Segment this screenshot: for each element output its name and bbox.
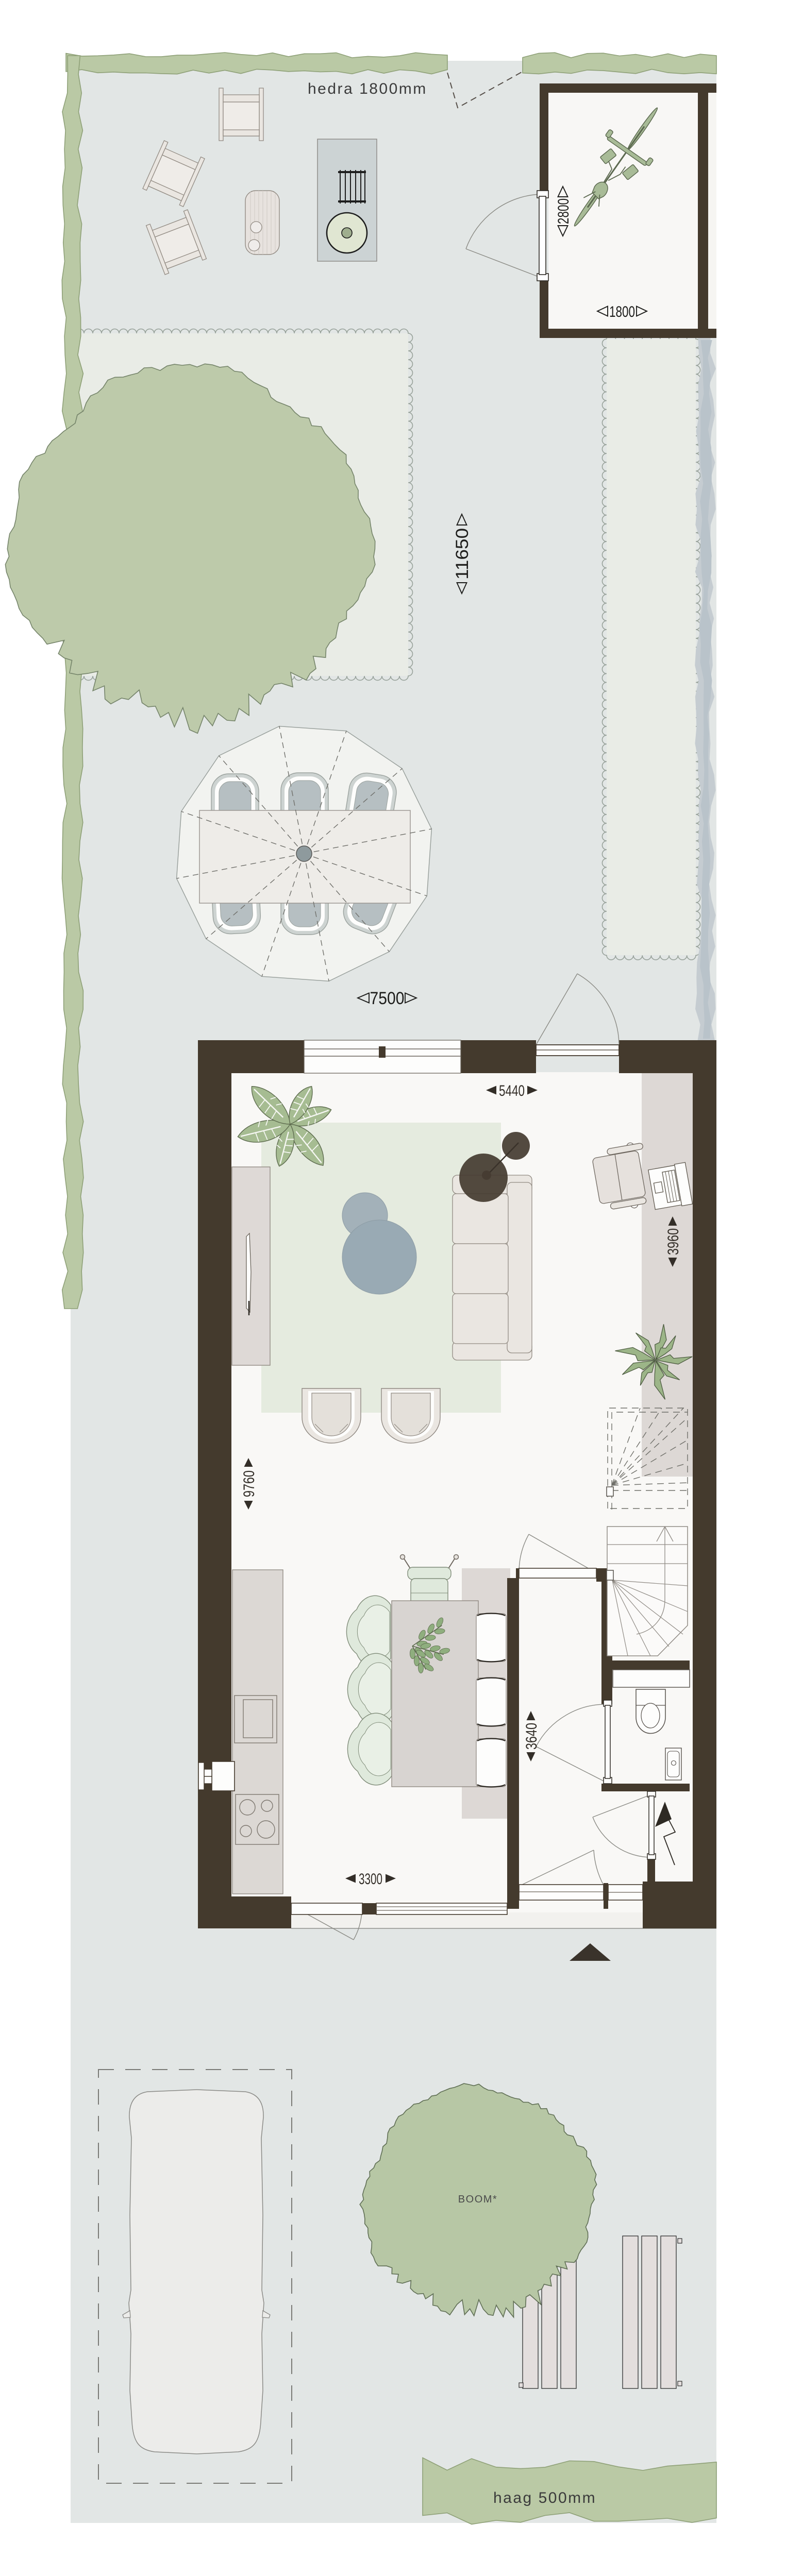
svg-text:9760: 9760 [241,1470,258,1497]
svg-text:2800: 2800 [555,198,572,224]
svg-text:BOOM*: BOOM* [458,2194,497,2205]
svg-text:3300: 3300 [359,1871,382,1888]
svg-text:5440: 5440 [499,1082,525,1099]
svg-text:11650: 11650 [453,528,472,580]
svg-text:hedra 1800mm: hedra 1800mm [308,80,427,97]
svg-text:7500: 7500 [370,989,405,1008]
svg-text:haag 500mm: haag 500mm [493,2489,596,2506]
svg-text:1800: 1800 [609,303,635,320]
svg-text:3960: 3960 [665,1228,682,1255]
svg-text:3640: 3640 [523,1723,540,1750]
